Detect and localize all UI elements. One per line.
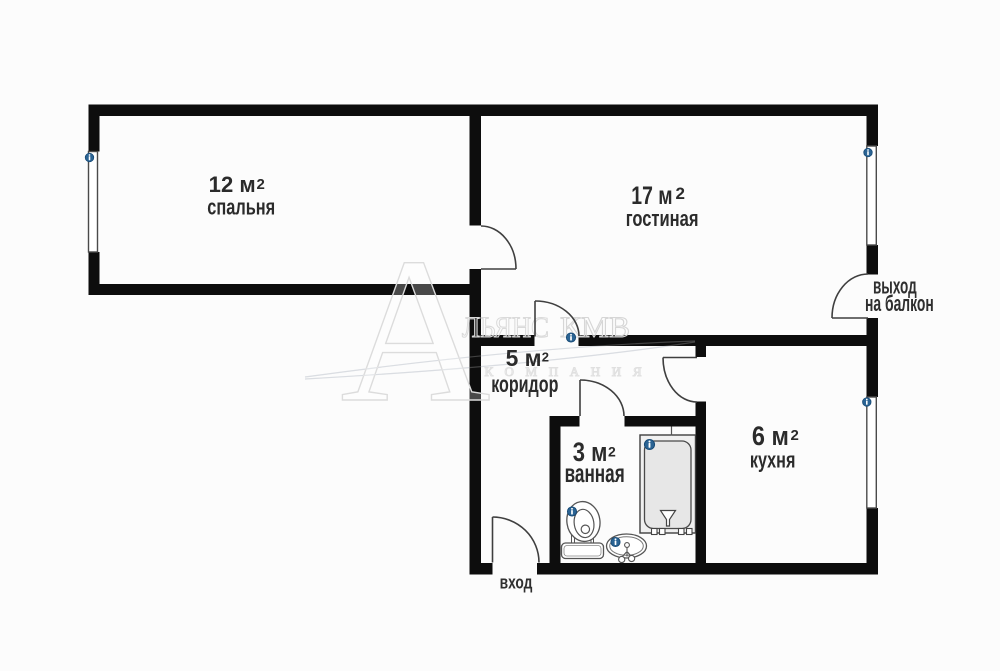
svg-text:12 м: 12 м — [209, 172, 256, 197]
svg-text:2: 2 — [676, 184, 685, 203]
svg-text:5 м: 5 м — [506, 345, 542, 371]
svg-text:ванная: ванная — [565, 458, 625, 488]
svg-text:коридор: коридор — [491, 371, 558, 397]
svg-text:2: 2 — [257, 176, 265, 193]
svg-text:гостиная: гостиная — [626, 206, 699, 231]
svg-text:6 м: 6 м — [752, 421, 789, 451]
svg-text:2: 2 — [791, 427, 799, 444]
svg-text:спальня: спальня — [207, 195, 275, 220]
svg-text:вход: вход — [500, 573, 533, 593]
svg-text:2: 2 — [542, 350, 549, 365]
svg-text:кухня: кухня — [750, 448, 796, 473]
svg-text:на балкон: на балкон — [865, 291, 934, 316]
svg-text:ЛЬЯНС: ЛЬЯНС — [462, 311, 549, 344]
